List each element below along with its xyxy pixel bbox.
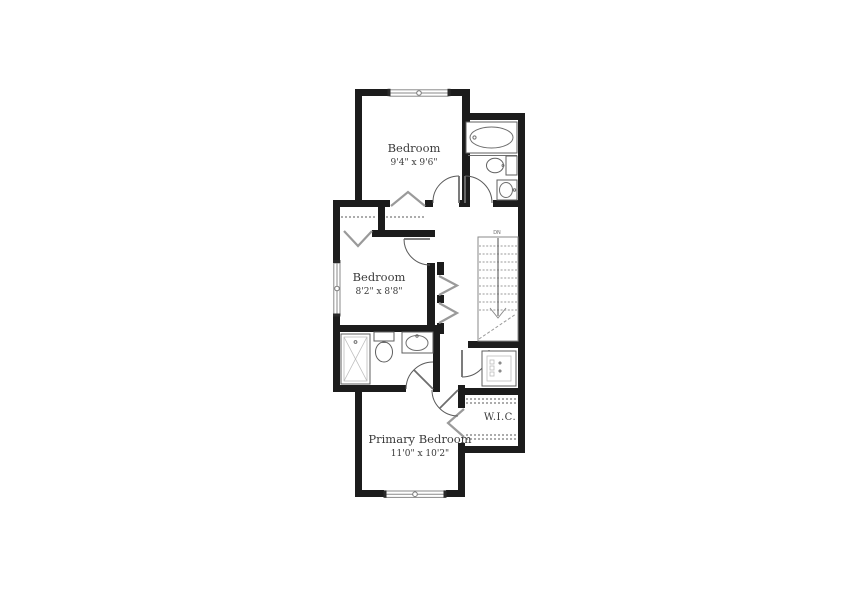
room-label-wic: W.I.C.	[484, 412, 516, 423]
door-swing-icon	[404, 239, 430, 265]
room-label-primary-bedroom: Primary Bedroom	[368, 432, 471, 446]
room-label-bedroom-top: Bedroom	[388, 141, 441, 155]
wall	[465, 388, 518, 395]
stairs-dn-label: DN	[493, 230, 501, 236]
room-dims-bedroom-mid: 8'2" x 8'8"	[356, 287, 403, 297]
washer-dryer-icon	[482, 351, 516, 386]
toilet-icon	[374, 332, 394, 362]
floor-plan-canvas: DN	[0, 0, 856, 598]
door-swing-icon	[406, 362, 433, 389]
sink-icon	[402, 332, 433, 353]
wall	[333, 385, 406, 392]
bifold-door-icon	[344, 231, 372, 246]
room-dims-bedroom-top: 9'4" x 9'6"	[391, 158, 438, 168]
wall	[425, 200, 433, 207]
wall	[493, 200, 525, 207]
bifold-door-icon	[391, 192, 425, 206]
window-icon	[333, 260, 341, 317]
wall	[437, 295, 444, 303]
window-icon	[388, 88, 451, 97]
wall	[433, 325, 440, 392]
wall	[518, 113, 525, 453]
wall	[355, 385, 362, 497]
doors	[404, 176, 492, 416]
page: { "plan": { "rooms": { "bedroom_top": { …	[0, 0, 856, 598]
wall	[458, 446, 525, 453]
room-dims-primary-bedroom: 11'0" x 10'2"	[391, 449, 449, 459]
staircase: DN	[478, 230, 518, 341]
bifold-door-icon	[439, 303, 457, 323]
bathtub-icon	[466, 122, 517, 156]
wall	[427, 263, 435, 332]
wall	[372, 230, 435, 237]
wall	[462, 113, 525, 120]
window-icon	[384, 490, 447, 499]
wall	[333, 325, 440, 332]
room-label-bedroom-mid: Bedroom	[353, 270, 406, 284]
wall	[355, 89, 362, 207]
door-swing-icon	[432, 390, 458, 416]
wall	[468, 341, 518, 348]
toilet-icon	[487, 156, 518, 175]
sink-icon	[497, 180, 517, 200]
wall	[458, 385, 465, 408]
wall	[437, 262, 444, 275]
door-swing-icon	[433, 176, 459, 203]
bifold-door-icon	[439, 276, 457, 295]
shower-icon	[341, 334, 370, 384]
